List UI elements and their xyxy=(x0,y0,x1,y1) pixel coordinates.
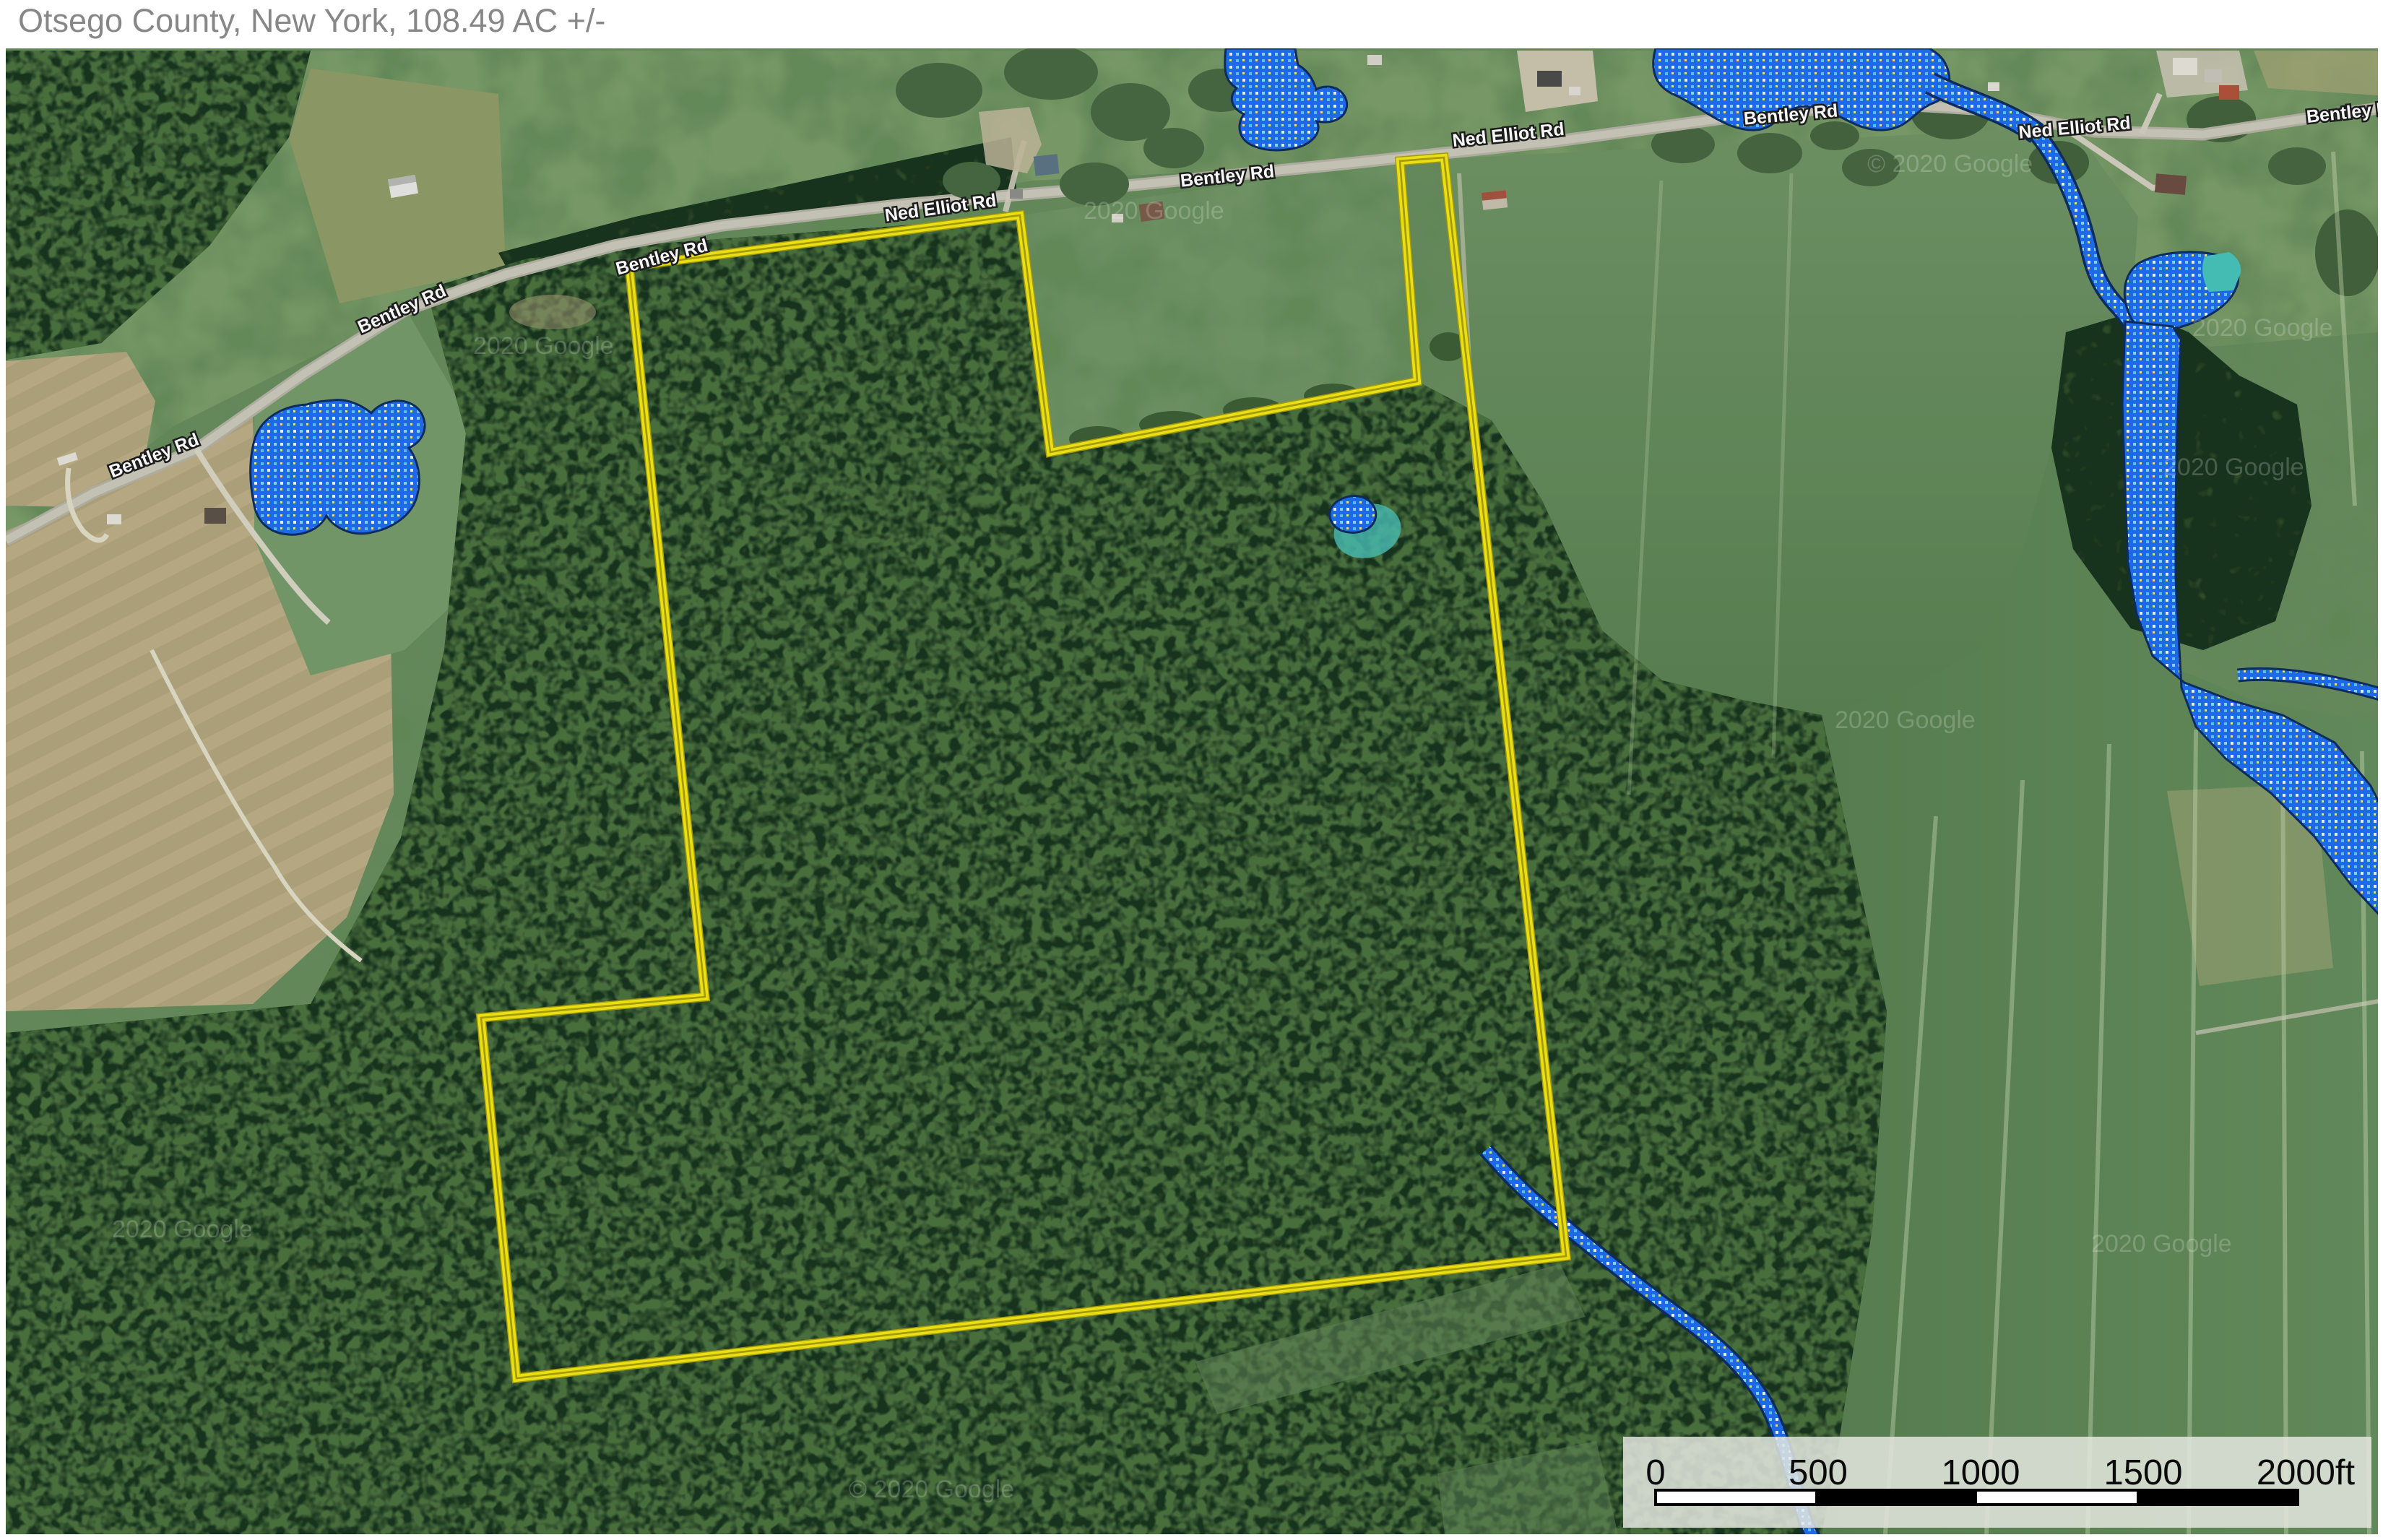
svg-text:1000: 1000 xyxy=(1941,1453,2020,1492)
svg-text:500: 500 xyxy=(1789,1453,1848,1492)
svg-text:1500: 1500 xyxy=(2103,1453,2182,1492)
svg-text:2000ft: 2000ft xyxy=(2257,1453,2356,1492)
svg-text:0: 0 xyxy=(1645,1453,1665,1492)
svg-text:Otsego County, New York, 108.4: Otsego County, New York, 108.49 AC +/- xyxy=(18,2,605,39)
